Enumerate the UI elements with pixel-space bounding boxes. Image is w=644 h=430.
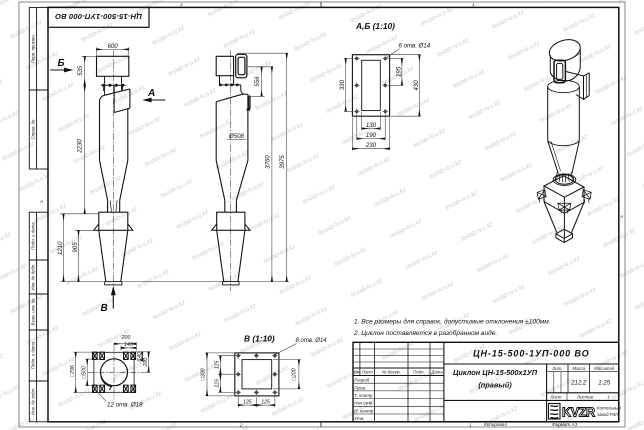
svg-text:А: А <box>39 199 43 204</box>
svg-text:Лист: Лист <box>549 395 561 400</box>
svg-text:завод РЗП: завод РЗП <box>596 412 619 417</box>
svg-text:1210: 1210 <box>57 241 64 255</box>
svg-text:1: 1 <box>472 2 475 7</box>
svg-text:Подп.: Подп. <box>413 369 424 374</box>
svg-text:А,Б (1:10): А,Б (1:10) <box>355 21 395 31</box>
svg-text:125: 125 <box>215 379 221 388</box>
svg-text:Изм: Изм <box>352 369 360 374</box>
svg-text:3975: 3975 <box>279 155 286 169</box>
svg-text:В (1:10): В (1:10) <box>244 333 275 343</box>
svg-text:905: 905 <box>72 242 79 253</box>
svg-text:430: 430 <box>413 80 420 91</box>
svg-text:Б: Б <box>58 58 65 69</box>
svg-text:Циклон ЦН-15-500х1УП: Циклон ЦН-15-500х1УП <box>453 368 538 377</box>
svg-text:2. Циклон поставляется в разоб: 2. Циклон поставляется в разобранном вид… <box>353 329 497 337</box>
svg-text:Инв. № дубл.: Инв. № дубл. <box>30 263 35 290</box>
svg-text:Разраб.: Разраб. <box>354 378 370 383</box>
svg-text:2: 2 <box>179 2 183 7</box>
svg-text:Масштаб: Масштаб <box>594 366 615 371</box>
svg-text:Подп. и дата: Подп. и дата <box>30 222 35 250</box>
svg-text:□300: □300 <box>201 368 207 380</box>
svg-text:1: 1 <box>469 422 472 427</box>
svg-text:Взам. инв. №: Взам. инв. № <box>30 298 35 325</box>
svg-text:600: 600 <box>108 43 119 50</box>
svg-text:125: 125 <box>215 360 221 369</box>
svg-text:(правый): (правый) <box>478 381 512 390</box>
svg-text:Листов: Листов <box>576 395 593 400</box>
svg-text:Перв. примен.: Перв. примен. <box>30 34 35 63</box>
svg-text:Ø508: Ø508 <box>228 133 245 140</box>
svg-text:Н. контр: Н. контр <box>354 408 374 413</box>
svg-text:1:25: 1:25 <box>598 380 610 387</box>
svg-text:212,2: 212,2 <box>570 380 587 387</box>
svg-text:□706: □706 <box>70 365 76 377</box>
svg-text:8 отв. Ø14: 8 отв. Ø14 <box>296 338 328 344</box>
svg-text:Лит.: Лит. <box>551 366 562 371</box>
svg-text:В: В <box>101 303 108 314</box>
svg-text:Лист: Лист <box>361 369 373 374</box>
svg-text:Дата: Дата <box>430 369 443 374</box>
svg-text:Котельный: Котельный <box>597 406 621 411</box>
svg-text:200: 200 <box>121 335 131 341</box>
svg-text:195: 195 <box>395 66 402 77</box>
svg-text:Копировал: Копировал <box>484 422 507 427</box>
svg-text:ЦН-15-500-1УП-000 ВО: ЦН-15-500-1УП-000 ВО <box>55 12 142 21</box>
svg-text:□500: □500 <box>82 366 88 378</box>
svg-text:1. Все размеры для справок, до: 1. Все размеры для справок, допустимые о… <box>354 318 551 326</box>
svg-text:KVZR: KVZR <box>562 406 595 420</box>
svg-text:А: А <box>619 214 623 219</box>
svg-text:230: 230 <box>365 142 377 149</box>
svg-text:Т. контр: Т. контр <box>354 393 373 398</box>
svg-text:3760: 3760 <box>264 155 271 169</box>
svg-text:Масса: Масса <box>572 366 585 371</box>
svg-text:□200: □200 <box>291 368 297 380</box>
svg-text:535: 535 <box>77 65 84 76</box>
svg-text:Формат А3: Формат А3 <box>552 422 578 427</box>
svg-text:190: 190 <box>366 132 377 139</box>
svg-text:140: 140 <box>137 352 143 361</box>
svg-text:Утв.: Утв. <box>354 416 364 421</box>
svg-text:6 отв. Ø14: 6 отв. Ø14 <box>399 43 431 50</box>
svg-text:200: 200 <box>143 358 149 368</box>
svg-text:125: 125 <box>243 400 252 406</box>
svg-text:Инв. № подл.: Инв. № подл. <box>30 388 35 415</box>
svg-text:12 отв. Ø18: 12 отв. Ø18 <box>107 402 143 409</box>
svg-text:Пров.: Пров. <box>354 385 366 390</box>
svg-text:330: 330 <box>339 79 346 90</box>
svg-text:125: 125 <box>261 400 270 406</box>
svg-text:2: 2 <box>239 422 243 427</box>
svg-text:140: 140 <box>124 342 133 348</box>
svg-text:ЦН-15-500-1УП-000 ВО: ЦН-15-500-1УП-000 ВО <box>473 349 589 359</box>
svg-text:№ докум.: № докум. <box>382 369 401 374</box>
svg-text:Нач.отд: Нач.отд <box>354 401 372 406</box>
svg-text:130: 130 <box>366 122 377 129</box>
svg-text:А: А <box>147 88 155 99</box>
svg-text:556: 556 <box>254 76 261 87</box>
svg-text:Справ. №: Справ. № <box>30 119 35 139</box>
svg-text:Подп. и дата: Подп. и дата <box>30 341 35 369</box>
svg-text:2230: 2230 <box>76 139 83 154</box>
